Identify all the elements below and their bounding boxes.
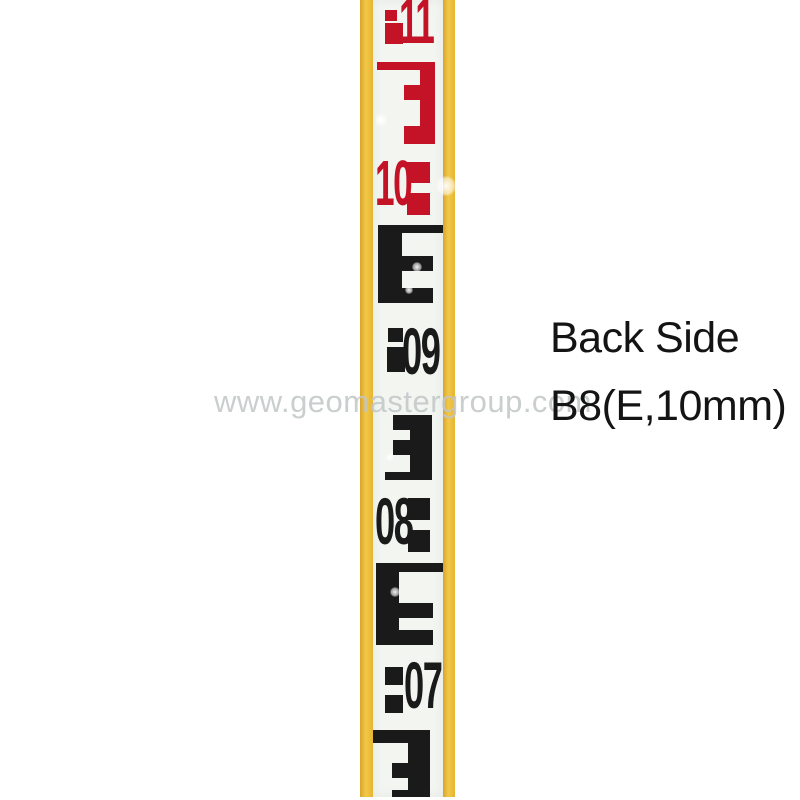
graduation-number-07: 07 <box>404 652 441 718</box>
graduation-mark-e-black4-stem <box>408 730 430 797</box>
label-back-side: Back Side <box>550 314 739 363</box>
graduation-mark-block-09-top <box>388 328 403 342</box>
graduation-mark-block-07-top <box>385 667 403 685</box>
graduation-mark-e-black3-mid-arm <box>399 603 433 618</box>
product-photo: 1110090807 www.geomastergroup.com Back S… <box>0 0 800 800</box>
graduation-mark-e-black3-bottom-arm <box>399 630 433 645</box>
graduation-number-11: 11 <box>399 0 433 53</box>
graduation-mark-e-black4-bottom-arm <box>392 790 430 797</box>
graduation-number-10: 10 <box>375 151 411 215</box>
graduation-mark-e-black1-bottom-arm <box>402 288 433 303</box>
watermark-text: www.geomastergroup.com <box>214 384 592 420</box>
graduation-mark-e-black3-stem <box>376 563 399 645</box>
graduation-mark-e-black2-stem <box>410 415 432 480</box>
graduation-mark-e-black1-stem <box>378 225 402 303</box>
graduation-mark-e-red-stem <box>420 62 435 144</box>
graduation-number-08: 08 <box>375 488 412 554</box>
graduation-mark-e-red-bottom-arm <box>404 126 420 144</box>
graduation-mark-e-black1-mid-arm <box>402 256 433 271</box>
graduation-mark-e-black4-mid-arm <box>392 763 408 778</box>
graduation-mark-e-black2-bottom-bar <box>385 472 432 480</box>
graduation-mark-block-07-bottom <box>385 695 403 713</box>
graduation-mark-e-black2-mid-arm <box>393 440 410 455</box>
graduation-mark-e-red-mid-arm <box>404 85 420 100</box>
graduation-number-09: 09 <box>402 318 439 384</box>
label-model: B8(E,10mm) <box>550 382 786 431</box>
graduation-mark-block-11-small <box>385 10 397 21</box>
